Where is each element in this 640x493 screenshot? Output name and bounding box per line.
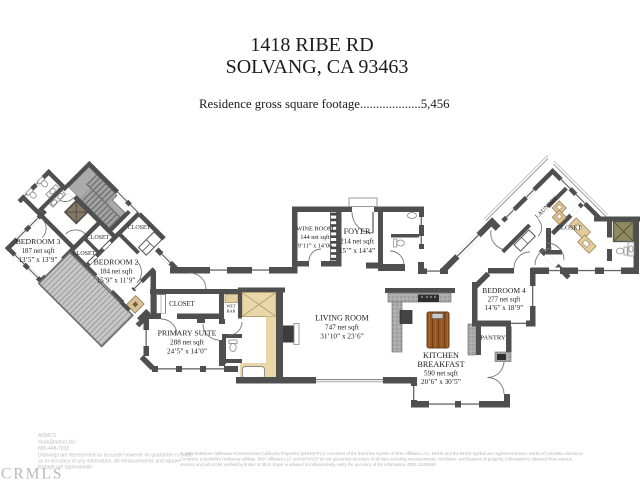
svg-text:BEDROOM 4: BEDROOM 4 xyxy=(482,286,526,295)
svg-text:590 net sqft: 590 net sqft xyxy=(424,370,458,378)
svg-text:288 net sqft: 288 net sqft xyxy=(170,339,204,347)
svg-text:1418 RIBE RD: 1418 RIBE RD xyxy=(250,34,373,56)
svg-text:CRMLS: CRMLS xyxy=(1,466,64,483)
svg-text:BEDROOM 3: BEDROOM 3 xyxy=(16,237,61,246)
svg-text:Company, a Berkshire Hathaway: Company, a Berkshire Hathaway affiliate.… xyxy=(180,457,572,462)
svg-text:© 2023 Berkshire Hathaway Home: © 2023 Berkshire Hathaway HomeServices C… xyxy=(180,451,584,456)
svg-text:FOYER: FOYER xyxy=(344,227,371,236)
svg-text:31’10” x 23’6”: 31’10” x 23’6” xyxy=(320,333,364,341)
svg-text:14’6” x 18’9”: 14’6” x 18’9” xyxy=(485,305,523,312)
svg-text:CLOSET: CLOSET xyxy=(169,301,196,308)
svg-text:9’11” x 14’06: 9’11” x 14’06 xyxy=(298,243,332,250)
svg-text:CLOSET: CLOSET xyxy=(87,235,110,241)
svg-text:BREAKFAST: BREAKFAST xyxy=(417,360,464,369)
svg-text:CLOSET: CLOSET xyxy=(73,251,96,257)
svg-text:KITCHEN: KITCHEN xyxy=(423,351,459,360)
svg-text:15’” x 14’4”: 15’” x 14’4” xyxy=(339,247,375,255)
svg-text:Residence gross square footage: Residence gross square footage..........… xyxy=(199,97,450,111)
svg-text:WINE ROOM: WINE ROOM xyxy=(296,226,334,233)
svg-text:15’9” x 11’9”: 15’9” x 11’9” xyxy=(97,277,136,285)
svg-text:184 net sqft: 184 net sqft xyxy=(99,268,132,276)
svg-text:PANTRY: PANTRY xyxy=(480,335,506,342)
svg-text:24’5” x 14’0”: 24’5” x 14’0” xyxy=(167,348,207,356)
svg-text:LIVING ROOM: LIVING ROOM xyxy=(315,314,369,323)
svg-text:BAR: BAR xyxy=(227,309,236,314)
svg-text:sources and will not be verifi: sources and will not be verified by brok… xyxy=(180,462,436,467)
svg-text:144 net sqft: 144 net sqft xyxy=(300,234,329,241)
svg-text:CLOSET: CLOSET xyxy=(557,225,582,232)
svg-text:CLOSET: CLOSET xyxy=(128,225,151,231)
svg-text:PRIMARY SUITE: PRIMARY SUITE xyxy=(158,329,217,338)
svg-text:187 net sqft: 187 net sqft xyxy=(21,247,54,255)
svg-text:mark@armcs.biz: mark@armcs.biz xyxy=(38,440,76,446)
svg-text:13’5” x 13’9”: 13’5” x 13’9” xyxy=(19,256,58,264)
svg-text:SOLVANG, CA 93463: SOLVANG, CA 93463 xyxy=(226,56,409,78)
svg-text:ARMCS: ARMCS xyxy=(38,433,57,439)
svg-text:277 net sqft: 277 net sqft xyxy=(488,297,521,304)
svg-text:805-448-7032: 805-448-7032 xyxy=(38,446,69,452)
svg-text:747 net sqft: 747 net sqft xyxy=(325,324,359,332)
svg-text:20’6” x 30’5”: 20’6” x 30’5” xyxy=(421,378,461,386)
svg-text:214 net sqft: 214 net sqft xyxy=(340,238,374,246)
svg-text:BEDROOM 2: BEDROOM 2 xyxy=(94,258,139,267)
